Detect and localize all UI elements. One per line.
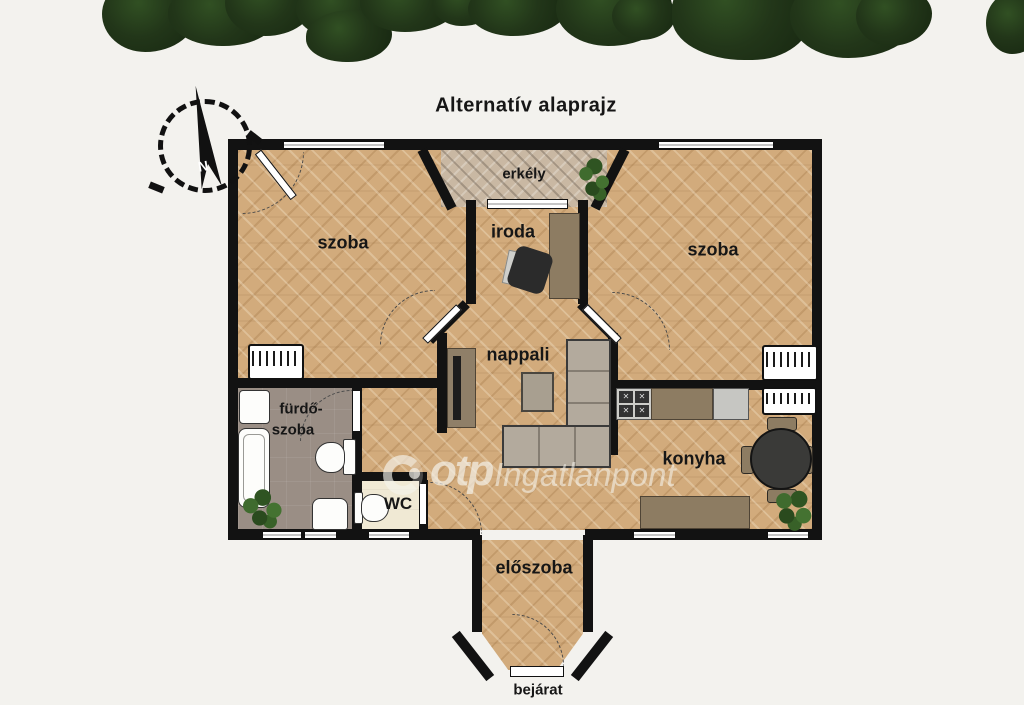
window-bathroom-2: [304, 531, 337, 539]
window-wc: [368, 531, 410, 539]
radiator-room-left: [248, 344, 304, 380]
plant-balcony: [573, 151, 616, 208]
compass-tick-icon: [148, 181, 165, 193]
burner-icon: ✕: [619, 391, 633, 403]
burner-icon: ✕: [635, 391, 649, 403]
tree-icon: [612, 0, 676, 40]
window-bathroom-1: [262, 531, 302, 539]
toilet-bathroom-bowl: [315, 442, 345, 473]
kitchen-counter-bottom: [640, 496, 750, 529]
burner-icon: ✕: [635, 405, 649, 417]
room-label-room-right: szoba: [687, 240, 738, 261]
room-label-bathroom-1: fürdő-: [279, 401, 322, 418]
window-room-left: [283, 141, 385, 149]
watermark-brand: otp: [430, 446, 492, 496]
watermark-name: Ingatlanpont: [494, 456, 676, 494]
stove: ✕ ✕ ✕ ✕: [616, 388, 652, 420]
coffee-table: [521, 372, 554, 412]
room-label-bathroom-2: szoba: [272, 422, 315, 439]
door-leaf-bathroom: [352, 390, 361, 432]
door-leaf-wc: [419, 483, 427, 525]
burner-icon: ✕: [619, 405, 633, 417]
page-title: Alternatív alaprajz: [435, 95, 617, 118]
entrance-label: bejárat: [513, 682, 562, 699]
wall-left: [228, 139, 238, 540]
office-wall-left: [466, 200, 476, 304]
room-label-hallway: előszoba: [495, 558, 572, 579]
room-label-office: iroda: [491, 222, 535, 243]
window-room-right: [658, 141, 774, 149]
room-label-living: nappali: [486, 345, 549, 366]
bathroom-sink: [312, 498, 348, 530]
tree-icon: [986, 0, 1024, 54]
washing-machine: [239, 390, 270, 424]
hall-wall-right: [583, 535, 593, 632]
room-label-balcony: erkély: [502, 166, 545, 183]
tree-icon: [468, 0, 568, 36]
kitchen-cabinet: [713, 388, 749, 420]
office-desk: [549, 213, 580, 299]
dining-table: [750, 428, 812, 490]
room-label-room-left: szoba: [317, 233, 368, 254]
floor-plan-page: Alternatív alaprajz: [0, 0, 1024, 705]
window-kitchen-1: [633, 531, 676, 539]
entrance-door-leaf: [510, 666, 564, 677]
kitchen-counter-top: [651, 388, 713, 420]
tv: [453, 356, 461, 420]
tree-icon: [856, 0, 932, 46]
wall-right: [812, 139, 822, 540]
hall-wall-left: [472, 535, 482, 632]
tv-cabinet: [447, 348, 476, 428]
room-label-wc: WC: [384, 494, 412, 514]
watermark-logo-dot: [409, 468, 420, 479]
balcony-door-window: [487, 199, 568, 209]
radiator-room-right: [762, 345, 818, 381]
radiator-kitchen: [762, 387, 817, 415]
